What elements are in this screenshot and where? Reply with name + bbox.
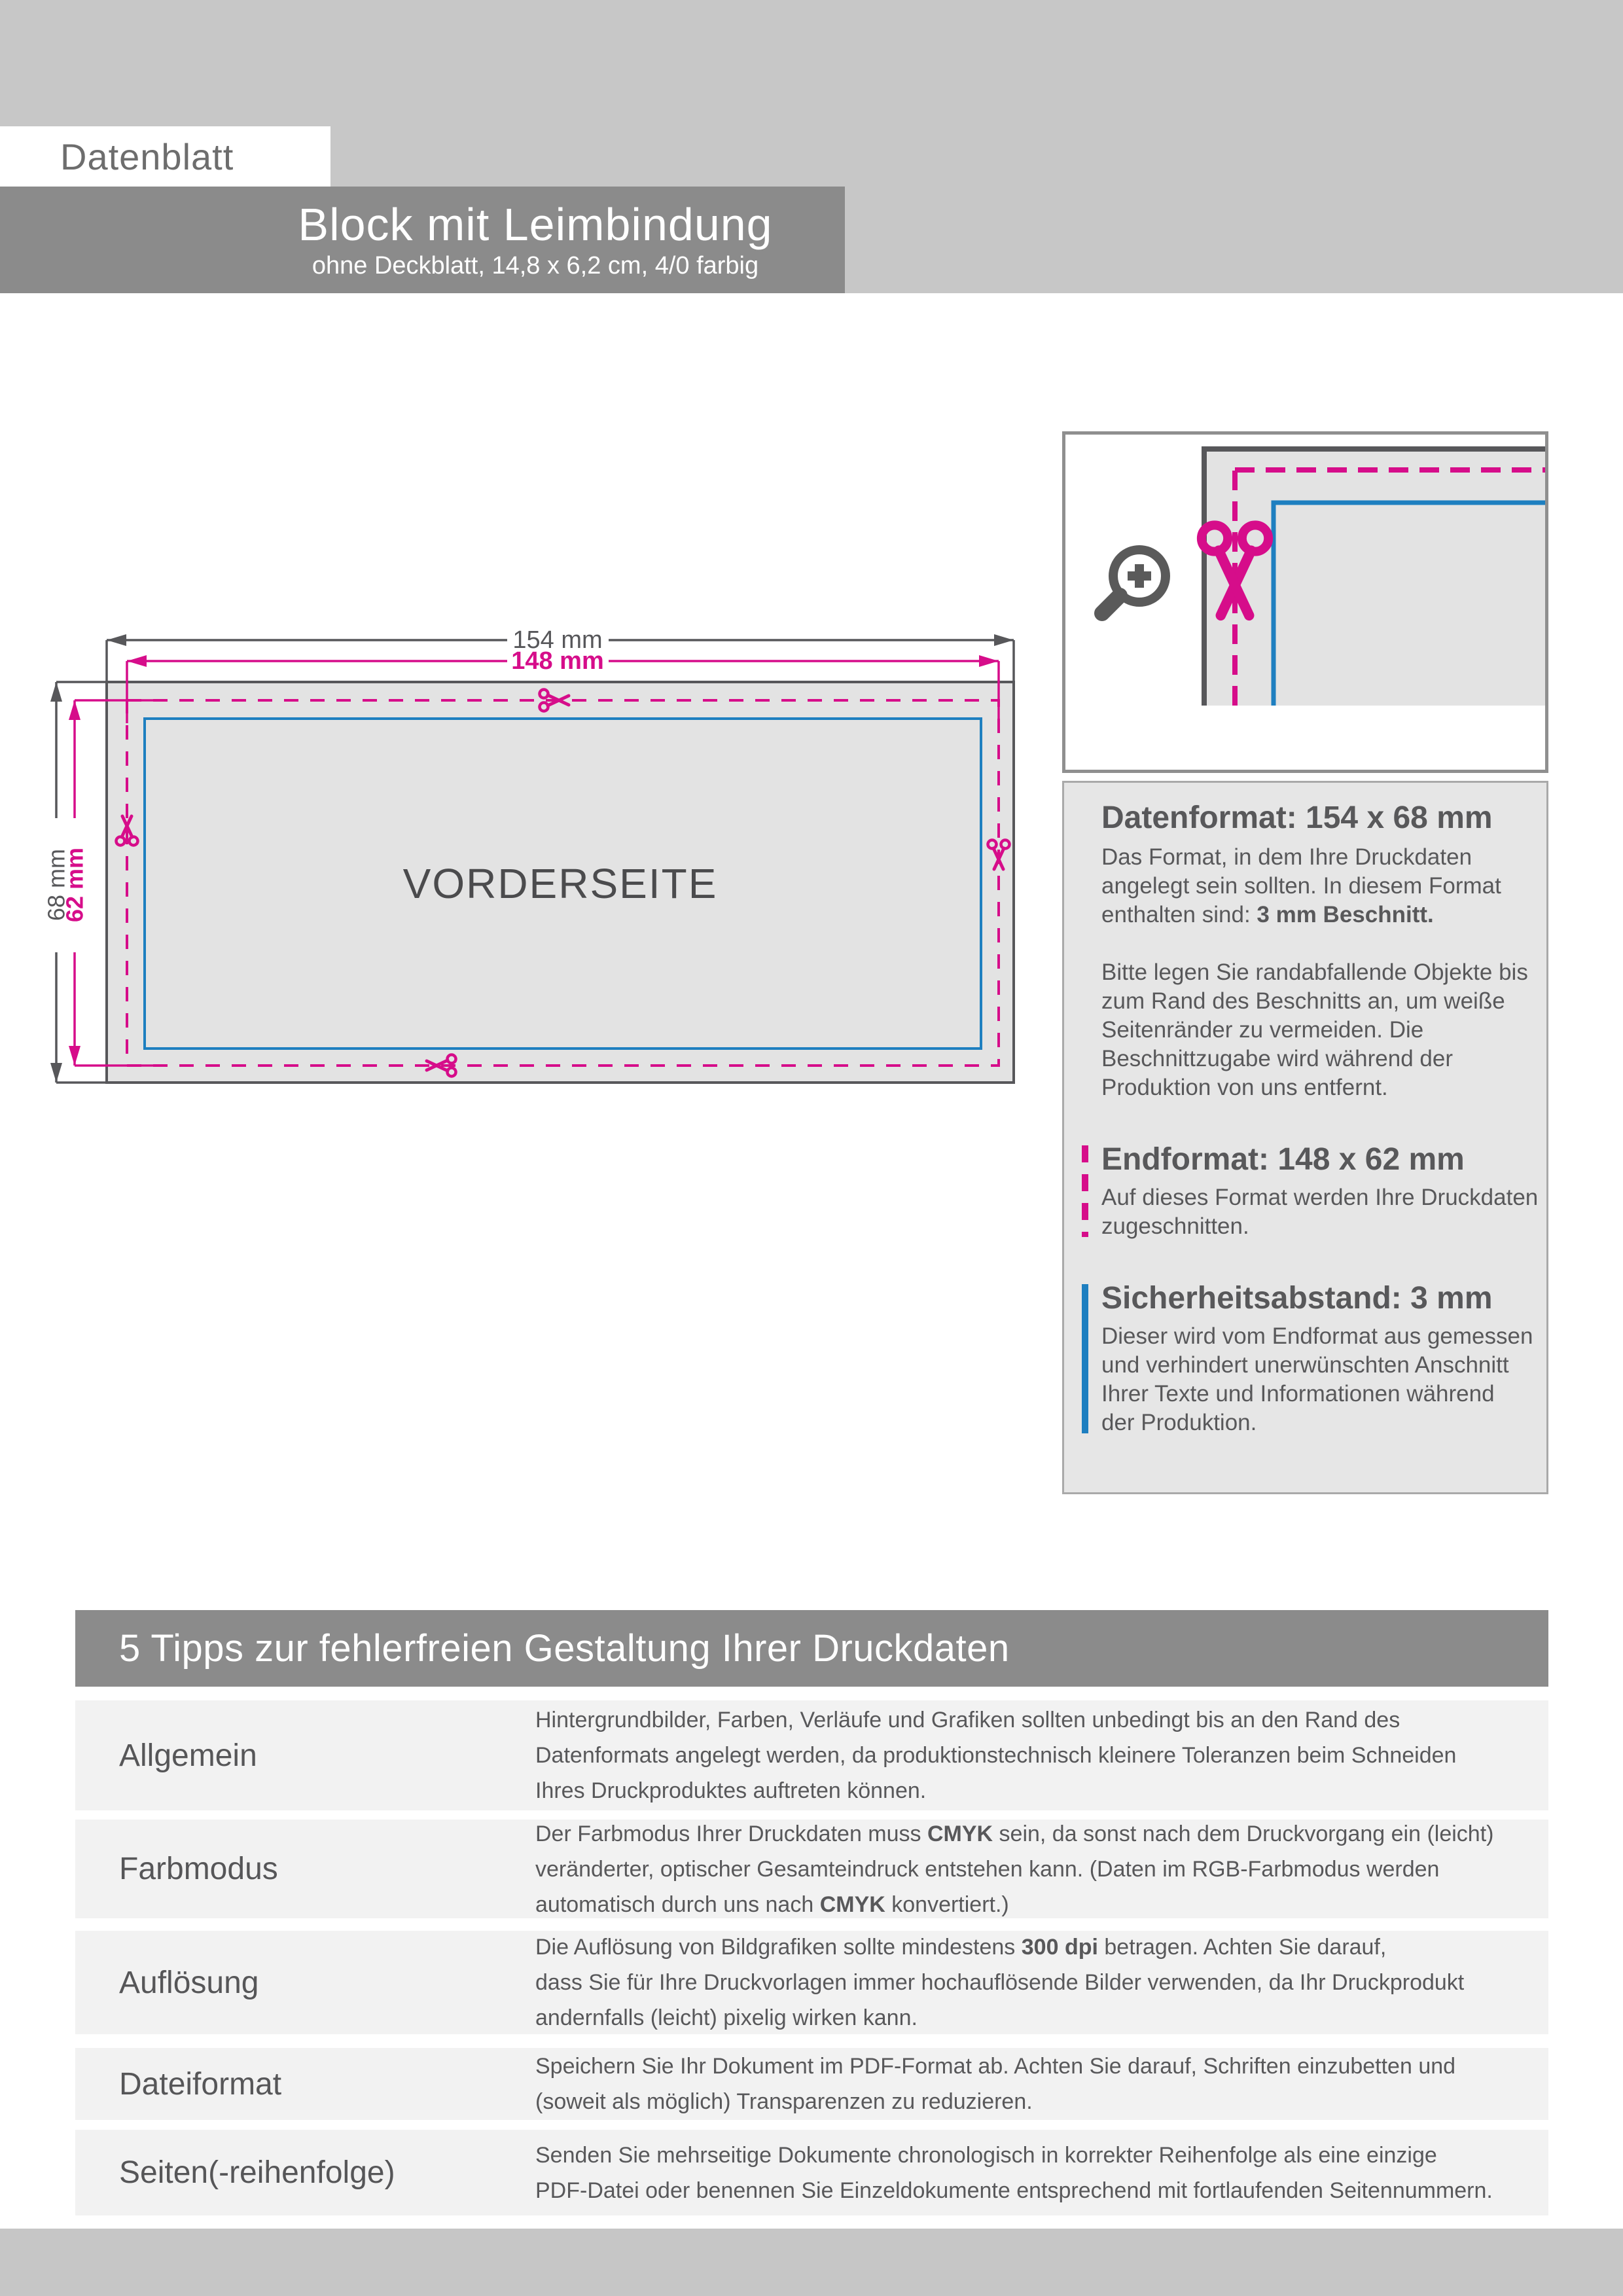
tip-text: Die Auflösung von Bildgrafiken sollte mi…	[535, 1929, 1464, 2036]
magnifier-plus-icon	[1102, 550, 1166, 613]
datenformat-body2: Bitte legen Sie randabfallende Objekte b…	[1101, 958, 1524, 1102]
tip-row-dateiformat: Dateiformat Speichern Sie Ihr Dokument i…	[75, 2048, 1548, 2120]
corner-zoom-graphic	[1065, 435, 1545, 770]
tip-label: Auflösung	[75, 1965, 535, 2001]
format-diagram: VORDERSEITE 154 mm 148 mm 68 mm 62 mm	[0, 615, 1060, 1126]
sicherheit-bar	[1082, 1284, 1088, 1433]
datenblatt-label: Datenblatt	[60, 135, 234, 178]
sicherheit-title: Sicherheitsabstand: 3 mm	[1101, 1280, 1524, 1317]
sicherheit-section: Sicherheitsabstand: 3 mm Dieser wird vom…	[1101, 1280, 1524, 1437]
endformat-section: Endformat: 148 x 62 mm Auf dieses Format…	[1101, 1141, 1524, 1241]
datenformat-section: Datenformat: 154 x 68 mm Das Format, in …	[1101, 800, 1524, 1102]
tips-title: 5 Tipps zur fehlerfreien Gestaltung Ihre…	[119, 1626, 1010, 1670]
dim-62-arrow-top	[69, 700, 80, 720]
dim-62-label: 62 mm	[62, 848, 88, 922]
datenblatt-label-box: Datenblatt	[0, 126, 330, 187]
product-banner-text: Block mit Leimbindung ohne Deckblatt, 14…	[226, 187, 845, 293]
dim-148-arrow-left	[127, 655, 147, 667]
tip-row-farbmodus: Farbmodus Der Farbmodus Ihrer Druckdaten…	[75, 1820, 1548, 1918]
tip-row-seitenreihenfolge: Seiten(-reihenfolge) Senden Sie mehrseit…	[75, 2130, 1548, 2215]
zoom-fill	[1204, 449, 1545, 706]
tip-label: Seiten(-reihenfolge)	[75, 2155, 535, 2191]
tip-label: Allgemein	[75, 1738, 535, 1774]
tip-row-aufloesung: Auflösung Die Auflösung von Bildgrafiken…	[75, 1931, 1548, 2034]
dim-154-arrow-right	[994, 634, 1014, 646]
dim-148-label: 148 mm	[511, 647, 604, 675]
dim-62-arrow-bottom	[69, 1046, 80, 1066]
dim-154-arrow-left	[107, 634, 126, 646]
tip-text: Senden Sie mehrseitige Dokumente chronol…	[535, 2138, 1493, 2208]
dim-148-arrow-right	[979, 655, 999, 667]
product-banner: Block mit Leimbindung ohne Deckblatt, 14…	[0, 187, 845, 293]
front-side-label: VORDERSEITE	[403, 860, 718, 907]
tip-row-allgemein: Allgemein Hintergrundbilder, Farben, Ver…	[75, 1700, 1548, 1810]
footer-bar	[0, 2229, 1623, 2296]
dim-68-arrow-bottom	[50, 1063, 62, 1083]
tip-text: Speichern Sie Ihr Dokument im PDF-Format…	[535, 2049, 1455, 2119]
product-title: Block mit Leimbindung	[298, 200, 772, 249]
sicherheit-body: Dieser wird vom Endformat aus gemessenun…	[1101, 1322, 1524, 1437]
tip-text: Der Farbmodus Ihrer Druckdaten muss CMYK…	[535, 1816, 1493, 1922]
endformat-bar	[1082, 1145, 1088, 1237]
datenformat-body: Das Format, in dem Ihre Druckdatenangele…	[1101, 843, 1524, 929]
corner-zoom-box	[1062, 431, 1548, 773]
tip-label: Farbmodus	[75, 1851, 535, 1887]
endformat-body: Auf dieses Format werden Ihre Druckdaten…	[1101, 1183, 1524, 1241]
tips-banner: 5 Tipps zur fehlerfreien Gestaltung Ihre…	[75, 1610, 1548, 1687]
dim-68-arrow-top	[50, 682, 62, 702]
tip-label: Dateiformat	[75, 2066, 535, 2102]
format-info-panel: Datenformat: 154 x 68 mm Das Format, in …	[1062, 781, 1548, 1494]
product-subtitle: ohne Deckblatt, 14,8 x 6,2 cm, 4/0 farbi…	[312, 251, 758, 280]
tip-text: Hintergrundbilder, Farben, Verläufe und …	[535, 1702, 1456, 1808]
endformat-title: Endformat: 148 x 62 mm	[1101, 1141, 1524, 1178]
datenformat-title: Datenformat: 154 x 68 mm	[1101, 800, 1524, 836]
